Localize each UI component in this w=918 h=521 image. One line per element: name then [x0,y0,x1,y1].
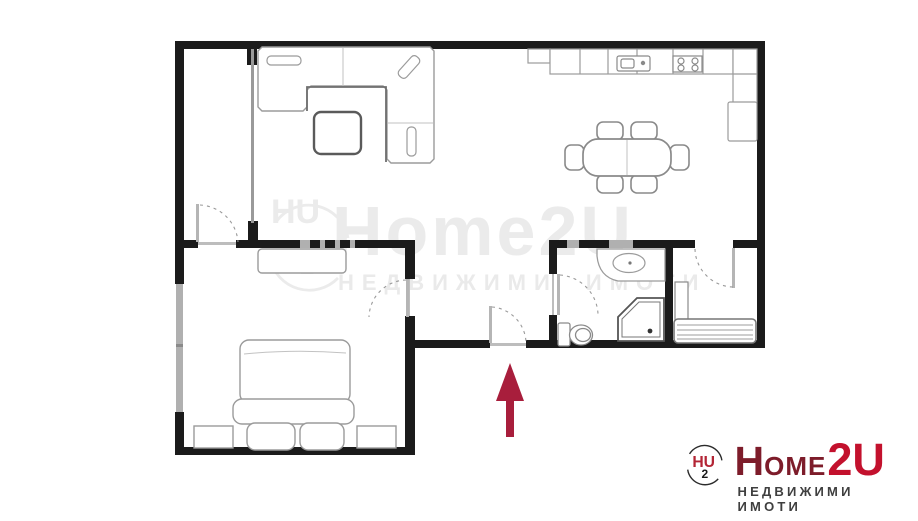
logo-word-2u: 2U [827,440,885,481]
burner [692,58,698,64]
logo-emblem-2: 2 [702,467,709,481]
dining-area [565,122,689,193]
threshold-bathroom [552,274,554,315]
wall-bedroom-top-a [184,240,198,248]
toilet-tank [558,323,570,346]
bathroom [558,249,665,346]
toilet-bowl-inner [576,329,591,342]
vanity-faucet [628,261,631,264]
wall-bedroom-top-f [355,240,405,248]
bed-blanket [233,399,354,424]
wall-hall-bottom-left [405,340,490,348]
burner [678,65,684,71]
door-entrance [489,306,526,343]
wall-bath-top-b [579,240,609,248]
kitchen-counter-right [733,49,757,103]
door-bedroom-east [369,279,409,317]
wall-bedroom-top-c [310,240,320,248]
door-leaf [732,248,735,288]
sink-faucet [641,61,644,64]
door-bathroom [557,274,598,315]
dining-chair [597,122,623,140]
wall-bath-storage-divider [665,240,673,348]
door-leaf [557,274,560,315]
door-leaf [406,279,409,317]
wall-bedroom-top-d [325,240,335,248]
threshold-bedroom-west [198,242,236,245]
wall-glass-seg-c [335,240,340,248]
wall-bath-left-upper [549,240,557,274]
logo-word-ome: OME [764,455,826,478]
living-room [258,47,434,163]
door-leaf [196,204,199,242]
bed-pillow [247,423,295,450]
entrance-arrow [496,363,524,437]
toilet [558,323,593,346]
wall-bedroom-top-b [236,240,300,248]
sofa-pillow [267,56,301,65]
wall-glass-seg-f [609,240,633,248]
wall-glass-seg-d [350,240,355,248]
door-arc [695,249,734,287]
kitchen-sink [617,56,650,71]
logo-emblem-icon: HU 2 [684,440,727,490]
wall-right [757,41,765,348]
window-mullion [176,344,183,347]
nightstand-right [357,426,396,448]
bed-pillow [300,423,344,450]
sink-bowl [621,59,634,68]
wall-storage-top-left [673,240,695,248]
logo-wordmark: HOME2U [735,440,918,481]
floor-plan-page: { "brand": { "emblem": { "hu": "HU", "tw… [0,0,918,521]
door-storage [695,248,735,288]
storage-room [674,282,756,343]
storage-cabinet [675,282,688,320]
cooktop [673,56,702,72]
burner [678,58,684,64]
wall-glass-seg-b [320,240,325,248]
nightstand-left [194,426,233,448]
wall-bedroom-right-upper [405,240,415,279]
sofa-pillow [407,127,416,156]
dresser [258,249,346,273]
wall-bedroom-right-lower [405,316,415,455]
burner [692,65,698,71]
door-arc [200,205,238,242]
shower-drain [648,329,653,334]
wall-bedroom-top-e [340,240,350,248]
wall-partition-stub-bottom [248,221,258,248]
wall-glass-seg-e [567,240,579,248]
kitchen-cabinet [528,49,550,63]
dining-chair [631,175,657,193]
brand-logo: HU 2 HOME2U НЕДВИЖИМИ ИМОТИ [684,440,918,514]
dining-chair [565,145,584,170]
wall-glass-seg-a [300,240,310,248]
bedroom [194,249,396,450]
coffee-table [314,112,361,154]
wall-bath-left-lower [549,315,557,348]
refrigerator [728,102,757,141]
window-bedroom-left [176,284,183,412]
logo-tagline: НЕДВИЖИМИ ИМОТИ [738,484,918,514]
door-leaf [489,306,492,343]
shower [618,298,664,341]
door-arc [369,280,406,317]
dining-chair [631,122,657,140]
door-arc [560,275,598,314]
door-arc [492,307,526,342]
partition-line [251,49,254,223]
wall-left-mid [175,242,184,284]
wall-left-upper [175,41,184,247]
threshold-entrance [490,343,526,346]
door-bedroom-west [196,204,238,242]
dining-chair [670,145,689,170]
dining-chair [597,175,623,193]
logo-word-h: H [735,443,765,480]
door-thresholds [198,242,554,346]
bed-duvet [240,340,350,403]
